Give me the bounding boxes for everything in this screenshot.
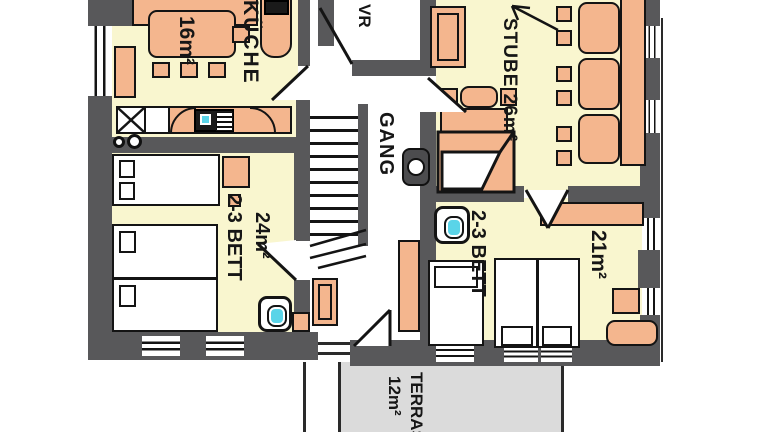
bed-foot: [501, 326, 533, 346]
couch-cushion: [578, 114, 620, 164]
living-cabinet-inner: [437, 13, 459, 61]
door-threshold: [318, 352, 350, 355]
bed-divider: [114, 277, 216, 280]
window: [644, 100, 660, 133]
couch-pillow: [556, 6, 572, 22]
wall: [646, 58, 660, 100]
desk-chair: [441, 88, 458, 106]
window: [504, 346, 538, 362]
window: [88, 26, 112, 96]
hallway-cabinet-inner: [318, 284, 332, 320]
stove-icon: [264, 0, 289, 15]
room-area-bedroom-left: 24m²: [252, 212, 272, 259]
couch-pillow: [556, 66, 572, 82]
knob-dot: [407, 158, 425, 176]
window: [642, 218, 660, 250]
couch-cushion: [578, 58, 620, 110]
floorplan-canvas: KÜCHE 16m² VR STUBE 26m² GANG 2-3 BETT 2…: [0, 0, 768, 432]
room-area-bedroom-right: 21m²: [588, 230, 609, 279]
kitchen-chair: [208, 62, 226, 78]
wall: [638, 250, 660, 288]
sink-bowl: [200, 114, 211, 125]
washbasin-icon: [434, 206, 470, 244]
kitchen-chair: [152, 62, 170, 78]
couch-cushion: [578, 2, 620, 54]
wall: [352, 60, 426, 76]
room-label-living: STUBE 26m²: [500, 18, 519, 142]
room-label-hallway: GANG: [376, 112, 396, 176]
door-threshold: [318, 342, 350, 345]
window: [644, 26, 660, 58]
wardrobe: [540, 202, 644, 226]
washbasin-icon: [258, 296, 292, 332]
hallway-cabinet: [292, 312, 310, 332]
bed-divider: [536, 260, 539, 346]
bed-pillow: [119, 160, 135, 178]
bed-foot: [542, 326, 572, 346]
room-area-kitchen: 16m²: [176, 16, 197, 65]
pot-icon: [113, 136, 125, 148]
stove-x-icon: [116, 106, 146, 134]
bed-pillow: [119, 285, 136, 307]
window: [142, 336, 180, 356]
washbasin-bowl: [444, 216, 464, 239]
room-label-vestibule: VR: [356, 4, 373, 28]
room-area-terrace: 12m²: [386, 376, 403, 416]
door-knob-icon: [402, 148, 430, 186]
kitchen-bench: [114, 46, 136, 98]
side-table: [612, 288, 640, 314]
nightstand: [222, 156, 250, 188]
wall: [644, 0, 660, 26]
couch-pillow: [556, 90, 572, 106]
couch-pillow: [556, 126, 572, 142]
window: [541, 346, 572, 362]
wall: [88, 96, 112, 358]
wall: [88, 332, 298, 360]
desk-bench: [460, 86, 498, 108]
sink-drainer: [216, 112, 233, 131]
wall: [284, 332, 318, 360]
bench: [606, 320, 658, 346]
couch-pillow: [556, 30, 572, 46]
room-label-bedroom-right: 2-3 BETT: [468, 210, 488, 297]
wall: [294, 153, 310, 241]
room-label-bedroom-left: 2-3 BETT: [224, 194, 244, 281]
washbasin-bowl: [267, 305, 287, 327]
wall: [296, 100, 310, 142]
window: [642, 288, 660, 315]
wall: [88, 0, 138, 26]
bed-pillow: [119, 182, 135, 200]
room-label-terrace: TERRASSE: [408, 372, 425, 432]
room-label-kitchen: KÜCHE: [240, 0, 261, 85]
wall: [318, 0, 334, 46]
kitchen-cabinet: [144, 106, 170, 134]
couch-back: [620, 0, 646, 166]
couch-pillow: [556, 150, 572, 166]
desk: [440, 108, 508, 134]
wall: [642, 186, 660, 218]
terrace-edge: [303, 362, 306, 432]
stair-stringer: [358, 104, 368, 246]
window: [436, 344, 474, 362]
terrace-floor: [338, 362, 564, 432]
stair-icon: [310, 106, 358, 244]
pot-icon: [127, 134, 142, 149]
hallway-cabinet: [398, 240, 420, 332]
window: [206, 336, 244, 356]
wall: [426, 186, 524, 202]
wall: [298, 0, 310, 66]
wall-outline: [661, 18, 663, 362]
bed-pillow: [119, 231, 136, 253]
